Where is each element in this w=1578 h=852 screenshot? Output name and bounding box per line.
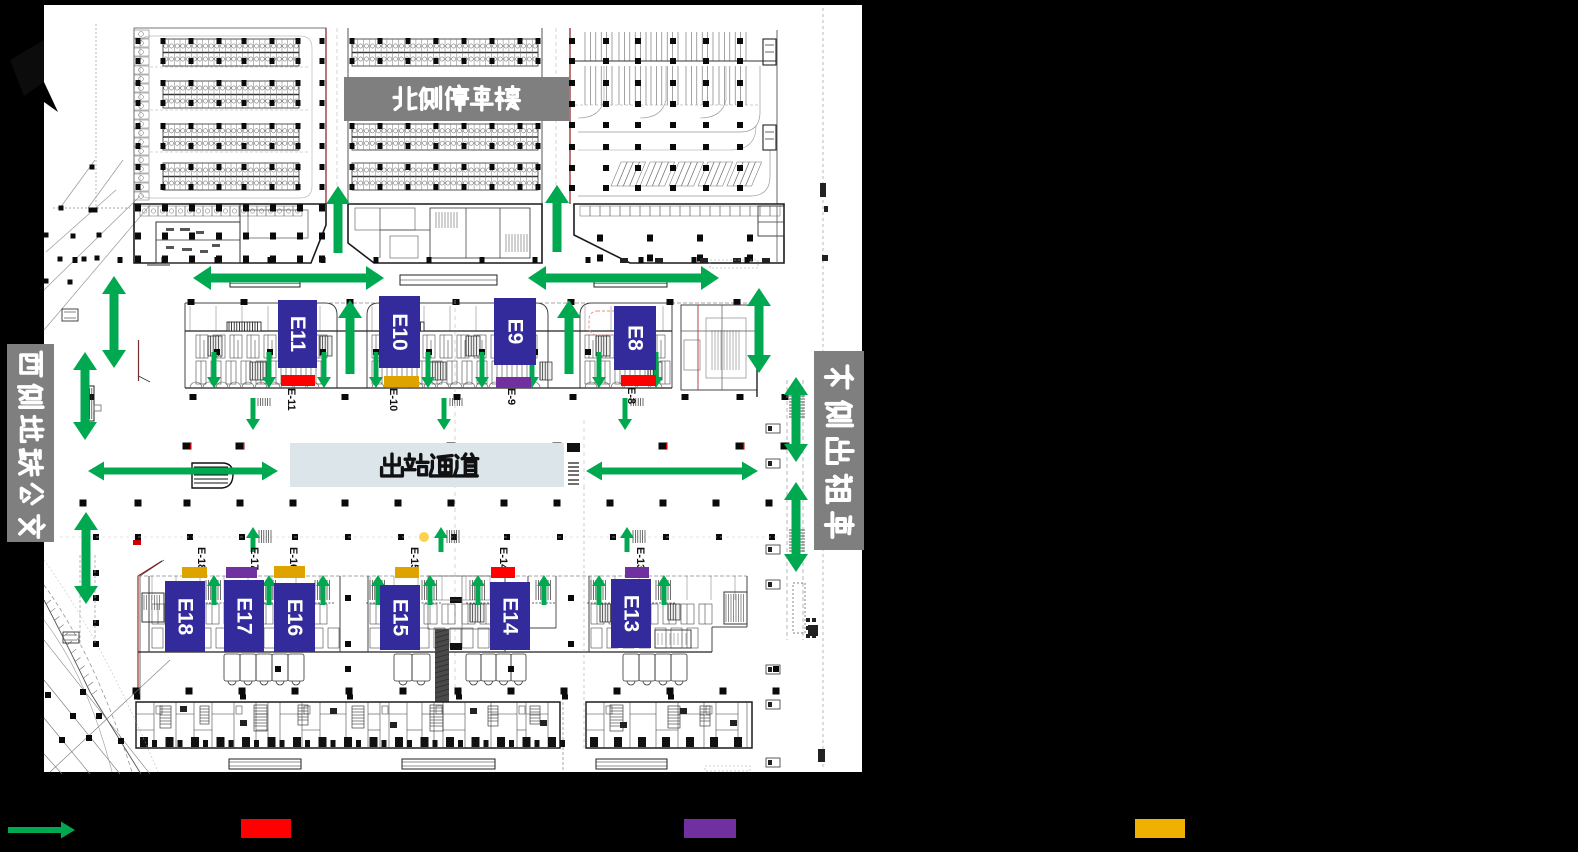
- svg-text:E17: E17: [233, 597, 256, 634]
- svg-text:E10: E10: [388, 313, 411, 350]
- svg-text:E9: E9: [504, 319, 527, 345]
- svg-text:E-10: E-10: [387, 388, 399, 411]
- svg-text:E15: E15: [389, 599, 412, 637]
- svg-text:E-15: E-15: [408, 547, 420, 570]
- svg-text:E-8: E-8: [625, 387, 637, 404]
- svg-text:E13: E13: [620, 595, 643, 632]
- svg-text:E18: E18: [174, 598, 197, 636]
- svg-text:E16: E16: [283, 599, 306, 636]
- svg-text:E11: E11: [286, 316, 309, 353]
- svg-text:E-9: E-9: [505, 388, 517, 405]
- svg-text:E8: E8: [624, 325, 647, 351]
- svg-text:E-11: E-11: [285, 388, 297, 411]
- svg-text:E-17: E-17: [248, 547, 260, 570]
- svg-text:E-13: E-13: [634, 547, 646, 570]
- svg-text:E14: E14: [499, 597, 522, 635]
- svg-text:E-18: E-18: [195, 547, 207, 570]
